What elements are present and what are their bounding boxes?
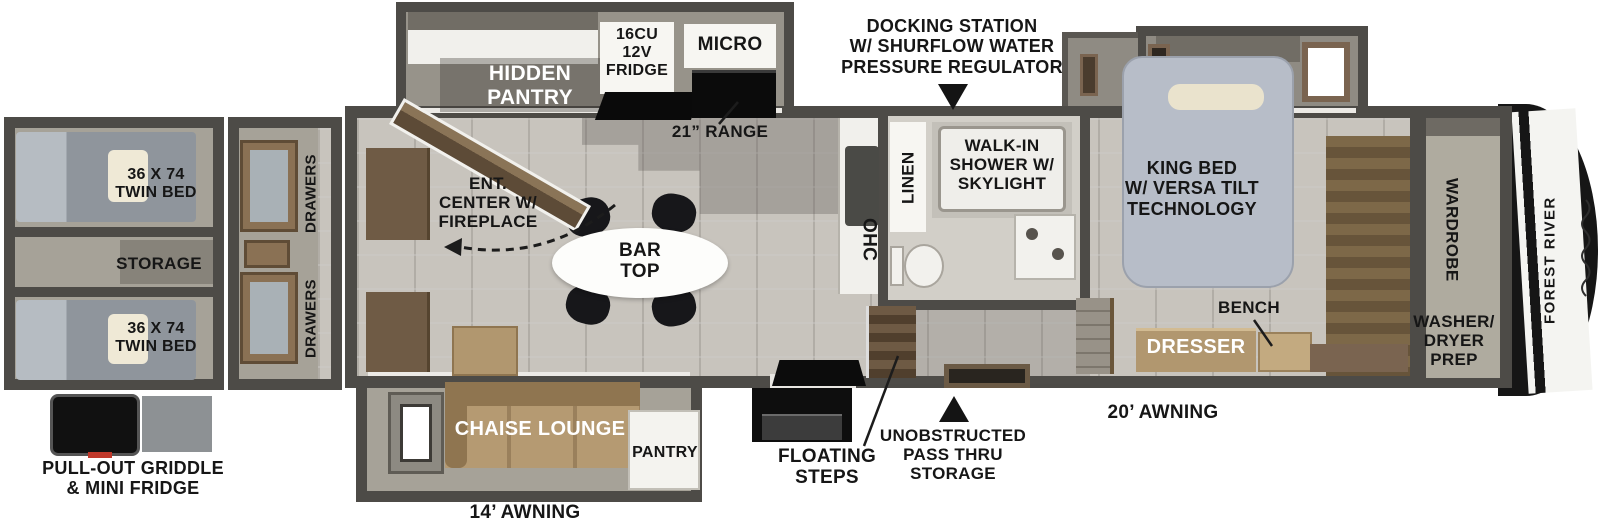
bunk-divider — [15, 287, 213, 297]
forest-river-logo: FOREST RIVER — [1538, 140, 1564, 380]
wardrobe-label: WARDROBE — [1438, 150, 1466, 310]
chaise-label: CHAISE LOUNGE — [430, 418, 650, 441]
drawers-upper-label: DRAWERS — [297, 146, 327, 242]
range-label: 21” RANGE — [650, 122, 790, 141]
dresser-mirror-upper — [250, 150, 288, 222]
chaise-slide-opening — [368, 372, 690, 376]
storage-label: STORAGE — [96, 254, 222, 273]
bath-vanity — [1014, 214, 1076, 280]
bed-pillow — [1168, 84, 1264, 110]
bench-label: BENCH — [1210, 298, 1288, 317]
mini-fridge — [142, 396, 212, 452]
entry-step-inside — [772, 360, 866, 386]
ent-center-label: ENT. CENTER W/ FIREPLACE — [398, 174, 578, 232]
interior-floating-steps — [866, 306, 916, 378]
docking-station-label: DOCKING STATION W/ SHURFLOW WATER PRESSU… — [840, 16, 1064, 77]
shower-label: WALK-IN SHOWER W/ SKYLIGHT — [928, 136, 1076, 194]
twin-bed-lower-label: 36 X 74 TWIN BED — [96, 320, 216, 356]
toilet-tank — [890, 246, 904, 286]
dresser-label: DRESSER — [1140, 336, 1252, 359]
bedroom-closet-planks — [1326, 136, 1410, 376]
range-appliance — [692, 70, 776, 118]
griddle-label: PULL-OUT GRIDDLE & MINI FRIDGE — [28, 458, 238, 499]
awning-20-label: 20’ AWNING — [1068, 402, 1258, 423]
dresser-mirror-lower — [250, 282, 288, 354]
bar-top-label: BAR TOP — [552, 240, 728, 283]
king-bed-label: KING BED W/ VERSA TILT TECHNOLOGY — [1094, 158, 1290, 219]
pantry-counter-shadow — [408, 12, 598, 30]
awning-14-label: 14’ AWNING — [430, 502, 620, 523]
tv-wall-lower — [366, 292, 430, 372]
micro-label: MICRO — [688, 34, 772, 55]
pass-thru-pointer-icon — [939, 396, 969, 422]
vanity-sink — [1026, 228, 1038, 240]
pass-thru-hatch — [944, 364, 1030, 388]
hidden-pantry-label: HIDDEN PANTRY — [448, 62, 612, 109]
bedroom-steps — [1076, 298, 1114, 374]
fridge-label: 16CU 12V FRIDGE — [602, 26, 672, 80]
floating-steps-tread — [762, 414, 842, 440]
bunk-divider — [15, 227, 213, 237]
chaise-window-pane — [400, 404, 432, 462]
dresser-small-middle — [244, 240, 290, 268]
ottoman — [452, 326, 518, 376]
drawers-lower-label: DRAWERS — [297, 270, 327, 368]
linen-label: LINEN — [892, 128, 924, 228]
pull-out-griddle — [50, 394, 140, 456]
pantry-label: PANTRY — [626, 444, 704, 462]
bedroom-bottom-window — [1310, 344, 1408, 372]
front-block-window — [1080, 54, 1098, 96]
bench — [1258, 332, 1312, 372]
pass-thru-label: UNOBSTRUCTED PASS THRU STORAGE — [868, 426, 1038, 484]
ohc-label: OHC — [856, 192, 882, 288]
chaise-lounge-back — [445, 382, 640, 408]
docking-pointer-icon — [938, 84, 968, 110]
toilet-bowl — [904, 244, 944, 288]
twin-bed-upper-label: 36 X 74 TWIN BED — [96, 166, 216, 202]
floorplan-canvas: FOREST RIVER HIDDEN PANTRY 16CU 12V FRID… — [0, 0, 1600, 530]
bedroom-window-right — [1302, 42, 1350, 102]
vanity-sink — [1052, 248, 1064, 260]
washer-dryer-label: WASHER/ DRYER PREP — [1404, 312, 1504, 370]
